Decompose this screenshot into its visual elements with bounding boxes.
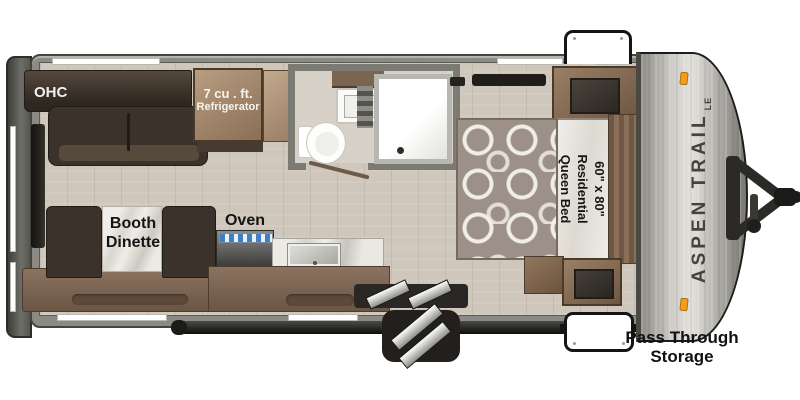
bed-name-label: Queen Bed [558,155,573,224]
refrigerator-size-label: 7 cu . ft. [195,86,261,101]
dinette-drawer [72,294,188,305]
tv-panel [31,124,45,248]
bathroom-wall-bottom-left [288,163,306,170]
awning-roller [173,321,569,334]
dinette-label-line2: Dinette [106,234,160,251]
refrigerator-base [197,142,263,152]
ceiling-vent [472,74,546,86]
window-bottom-kitchen [288,314,358,321]
hitch-tongue [716,146,800,250]
bed-type-label: Residential [575,154,590,223]
shower [374,74,452,164]
oven-label: Oven [200,212,290,230]
storage-label-line2: Storage [650,347,713,366]
brand-text: ASPEN TRAIL [689,112,710,283]
screw [620,37,623,40]
sink-drain [313,261,317,265]
bedroom-dresser [562,258,622,306]
awning-end-cap [171,320,187,335]
dinette-label: Booth Dinette [88,214,178,252]
toilet [306,122,346,164]
shower-drain [397,147,404,154]
stove-burners [219,233,273,243]
bathroom-wall-top [288,64,460,71]
sofa [48,106,208,166]
window-bottom-dinette [57,314,167,321]
kitchen-drawer [286,294,354,306]
bathroom-wall-bottom-right [368,163,460,170]
ohc-label: OHC [34,84,94,101]
bed-label: 60" x 80" Residential Queen Bed [554,109,608,269]
refrigerator: 7 cu . ft. Refrigerator [193,68,263,142]
kitchen-sink [288,244,340,266]
toilet-seat [315,132,339,156]
sofa-cushion-divider [127,113,130,151]
oven-stove [216,230,274,268]
storage-label-line1: Pass Through [625,328,738,347]
dresser-door-glass [574,269,614,299]
marker-light-bottom [679,298,688,312]
dinette-label-line1: Booth [110,215,156,232]
brand-logo: ASPEN TRAILLE [689,71,719,311]
screw [573,37,576,40]
refrigerator-label: Refrigerator [195,101,261,113]
window-rear-wall-lower [10,262,16,312]
speaker [450,77,465,86]
pass-through-storage-label: Pass Through Storage [620,328,744,366]
bed-foot-cabinet [524,256,564,294]
brand-badge: LE [703,97,713,111]
bathroom-storage-shelves [357,86,373,128]
queen-bed-comforter [456,118,558,260]
pantry-cabinet [263,70,289,142]
screw [573,342,576,345]
window-top-bedroom [497,58,563,65]
marker-light-top [679,72,688,86]
bathroom-wall-left [288,64,295,170]
window-top-rear [52,58,160,65]
window-rear-wall-upper [10,126,16,252]
rv-floorplan: OHC 7 cu . ft. Refrigerator Booth Dinett… [0,0,800,400]
bed-size-label: 60" x 80" [592,161,607,217]
pass-through-door-top [564,30,632,64]
